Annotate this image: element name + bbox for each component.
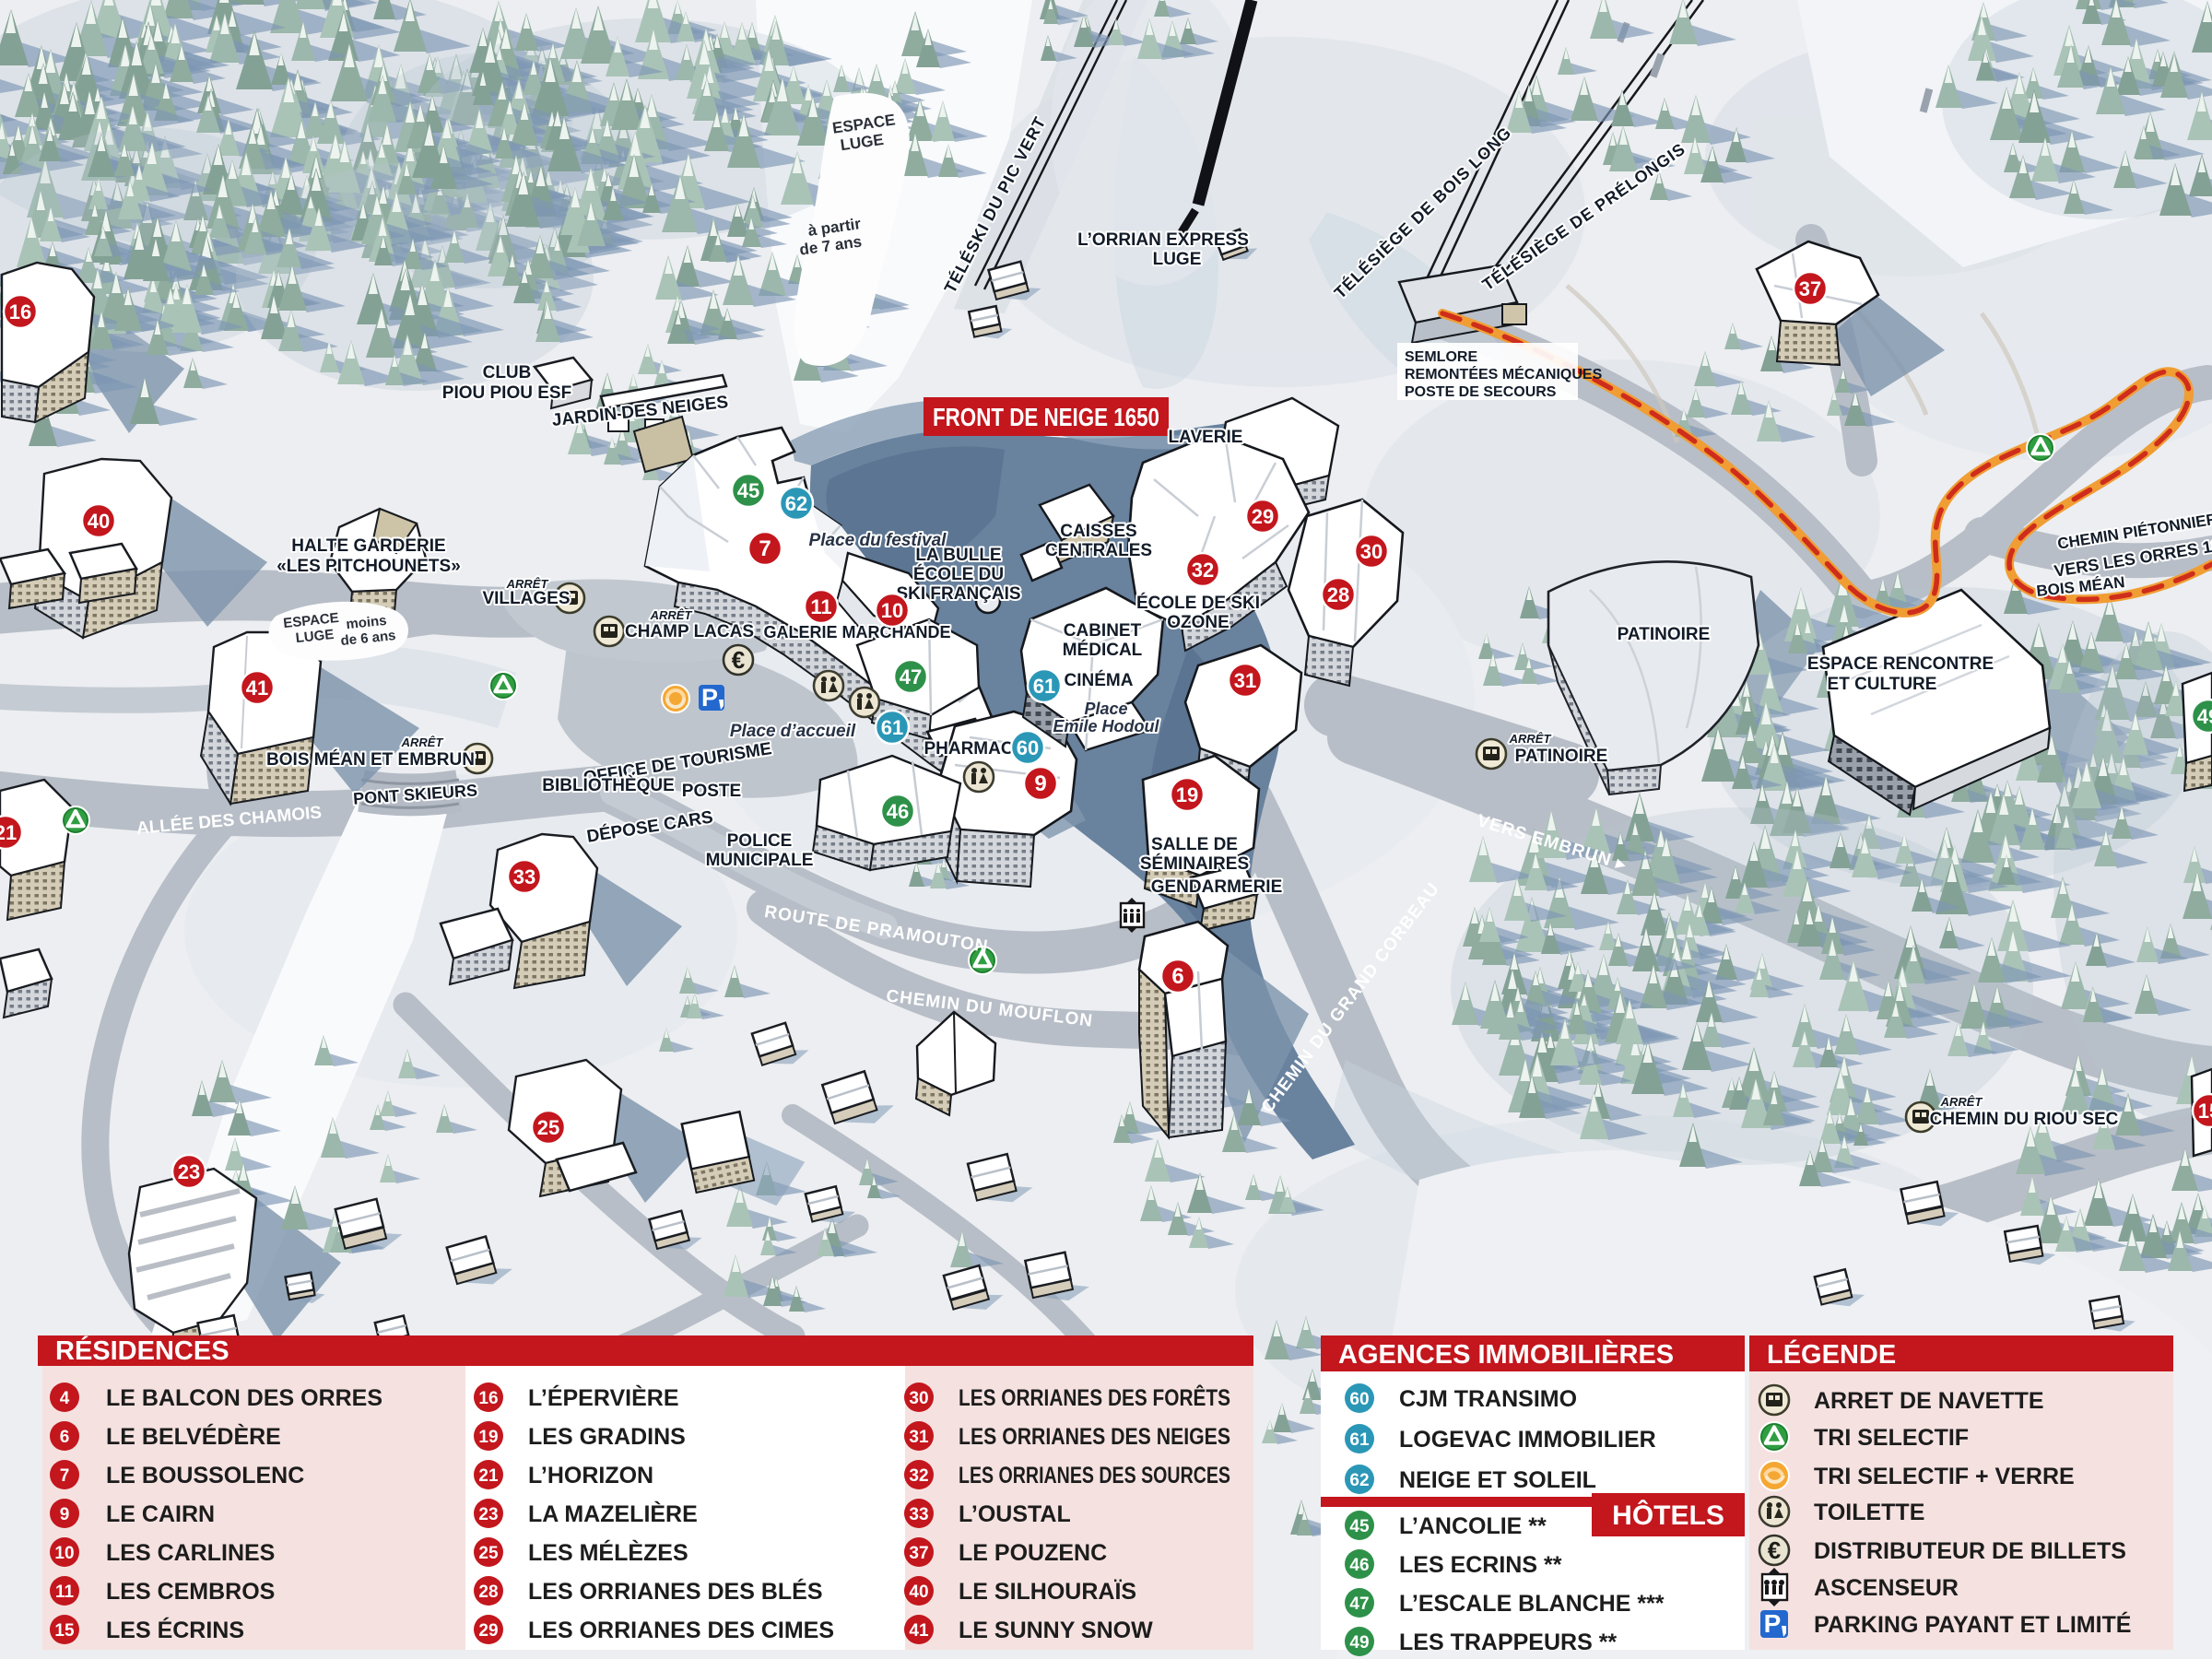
svg-text:LE BELVÉDÈRE: LE BELVÉDÈRE bbox=[106, 1423, 281, 1450]
svg-text:61: 61 bbox=[1033, 675, 1055, 698]
svg-text:SALLE DE: SALLE DE bbox=[1151, 835, 1238, 854]
svg-text:LE BOUSSOLENC: LE BOUSSOLENC bbox=[106, 1463, 304, 1488]
svg-text:LES ORRIANES DES FORÊTS: LES ORRIANES DES FORÊTS bbox=[959, 1383, 1230, 1411]
svg-text:L’OUSTAL: L’OUSTAL bbox=[959, 1501, 1071, 1527]
svg-text:47: 47 bbox=[1349, 1594, 1369, 1614]
svg-text:40: 40 bbox=[88, 510, 110, 533]
svg-text:32: 32 bbox=[1192, 559, 1214, 582]
svg-text:TRI SELECTIF: TRI SELECTIF bbox=[1814, 1425, 1969, 1451]
svg-text:LES MÉLÈZES: LES MÉLÈZES bbox=[528, 1539, 688, 1566]
svg-text:60: 60 bbox=[1349, 1390, 1369, 1409]
svg-text:21: 21 bbox=[478, 1466, 499, 1486]
svg-text:7: 7 bbox=[759, 536, 771, 561]
svg-text:TRI SELECTIF + VERRE: TRI SELECTIF + VERRE bbox=[1814, 1464, 2075, 1489]
svg-text:46: 46 bbox=[887, 800, 909, 823]
svg-text:6: 6 bbox=[1171, 964, 1183, 989]
svg-text:PATINOIRE: PATINOIRE bbox=[1515, 747, 1608, 766]
svg-text:28: 28 bbox=[478, 1583, 498, 1602]
svg-text:LE BALCON DES ORRES: LE BALCON DES ORRES bbox=[106, 1385, 382, 1411]
svg-text:POSTE DE SECOURS: POSTE DE SECOURS bbox=[1405, 384, 1557, 400]
svg-text:TOILETTE: TOILETTE bbox=[1814, 1500, 1924, 1525]
svg-text:DISTRIBUTEUR DE BILLETS: DISTRIBUTEUR DE BILLETS bbox=[1814, 1538, 2126, 1564]
svg-text:LES TRAPPEURS **: LES TRAPPEURS ** bbox=[1399, 1630, 1617, 1655]
svg-text:49: 49 bbox=[1349, 1633, 1369, 1653]
svg-text:ARRÊT: ARRÊT bbox=[401, 735, 444, 749]
svg-text:28: 28 bbox=[1327, 583, 1349, 606]
svg-text:62: 62 bbox=[785, 492, 807, 515]
svg-text:ARRET DE NAVETTE: ARRET DE NAVETTE bbox=[1814, 1388, 2044, 1414]
svg-text:LES ÉCRINS: LES ÉCRINS bbox=[106, 1617, 244, 1643]
svg-text:FRONT DE NEIGE 1650: FRONT DE NEIGE 1650 bbox=[933, 403, 1159, 431]
svg-text:GENDARMERIE: GENDARMERIE bbox=[1151, 877, 1283, 897]
svg-text:37: 37 bbox=[909, 1544, 928, 1563]
svg-text:LE SUNNY SNOW: LE SUNNY SNOW bbox=[959, 1618, 1153, 1643]
svg-text:10: 10 bbox=[54, 1544, 74, 1563]
svg-text:LAVERIE: LAVERIE bbox=[1169, 428, 1243, 447]
svg-text:31: 31 bbox=[909, 1428, 929, 1447]
svg-text:MUNICIPALE: MUNICIPALE bbox=[706, 851, 814, 870]
svg-text:LE POUZENC: LE POUZENC bbox=[959, 1540, 1107, 1566]
svg-text:Emile Hodoul: Emile Hodoul bbox=[1053, 717, 1159, 735]
svg-text:BIBLIOTHÈQUE: BIBLIOTHÈQUE bbox=[542, 775, 675, 795]
svg-text:47: 47 bbox=[900, 665, 922, 688]
svg-text:11: 11 bbox=[810, 595, 831, 618]
svg-text:LES CEMBROS: LES CEMBROS bbox=[106, 1579, 275, 1605]
svg-text:CHEMIN DU RIOU SEC: CHEMIN DU RIOU SEC bbox=[1930, 1110, 2119, 1129]
svg-text:10: 10 bbox=[881, 599, 903, 622]
svg-text:Place du festival: Place du festival bbox=[809, 531, 947, 550]
svg-text:49: 49 bbox=[2197, 705, 2212, 728]
svg-text:CAISSES: CAISSES bbox=[1060, 522, 1136, 541]
svg-text:15: 15 bbox=[54, 1621, 75, 1641]
svg-text:33: 33 bbox=[513, 865, 535, 888]
svg-text:41: 41 bbox=[909, 1621, 929, 1641]
svg-text:6: 6 bbox=[60, 1428, 70, 1447]
svg-text:L’ANCOLIE **: L’ANCOLIE ** bbox=[1399, 1513, 1547, 1539]
svg-text:19: 19 bbox=[1176, 783, 1198, 806]
svg-text:LES ORRIANES DES NEIGES: LES ORRIANES DES NEIGES bbox=[959, 1424, 1230, 1450]
svg-text:VILLAGES: VILLAGES bbox=[482, 589, 570, 608]
svg-text:61: 61 bbox=[1349, 1430, 1370, 1450]
svg-text:CINÉMA: CINÉMA bbox=[1065, 670, 1134, 690]
svg-text:30: 30 bbox=[1360, 540, 1382, 563]
svg-text:16: 16 bbox=[478, 1389, 498, 1408]
svg-text:HALTE GARDERIE: HALTE GARDERIE bbox=[291, 536, 445, 556]
svg-text:23: 23 bbox=[178, 1160, 200, 1183]
svg-text:LES ORRIANES DES SOURCES: LES ORRIANES DES SOURCES bbox=[959, 1463, 1230, 1488]
svg-text:21: 21 bbox=[0, 821, 17, 844]
svg-text:ARRÊT: ARRÊT bbox=[1509, 732, 1552, 746]
svg-text:Place: Place bbox=[1084, 700, 1127, 718]
svg-text:7: 7 bbox=[60, 1466, 70, 1486]
svg-text:ARRÊT: ARRÊT bbox=[1940, 1095, 1983, 1109]
svg-text:REMONTÉES MÉCANIQUES: REMONTÉES MÉCANIQUES bbox=[1405, 365, 1603, 382]
svg-text:CHAMP LACAS: CHAMP LACAS bbox=[625, 622, 754, 641]
svg-text:45: 45 bbox=[737, 479, 759, 502]
svg-text:9: 9 bbox=[1034, 771, 1046, 796]
svg-text:ARRÊT: ARRÊT bbox=[650, 608, 693, 622]
svg-text:€: € bbox=[1768, 1536, 1781, 1564]
svg-text:LES ORRIANES DES BLÉS: LES ORRIANES DES BLÉS bbox=[528, 1578, 823, 1605]
svg-text:40: 40 bbox=[909, 1583, 928, 1602]
svg-text:32: 32 bbox=[909, 1466, 928, 1486]
svg-text:POLICE: POLICE bbox=[727, 831, 793, 851]
svg-text:LES CARLINES: LES CARLINES bbox=[106, 1540, 275, 1566]
svg-text:19: 19 bbox=[478, 1428, 498, 1447]
svg-text:RÉSIDENCES: RÉSIDENCES bbox=[55, 1335, 229, 1366]
svg-text:61: 61 bbox=[881, 716, 903, 739]
svg-text:€: € bbox=[732, 646, 745, 674]
svg-text:LE SILHOURAÏS: LE SILHOURAÏS bbox=[959, 1579, 1136, 1605]
svg-text:29: 29 bbox=[1252, 505, 1274, 528]
svg-text:P: P bbox=[1764, 1609, 1782, 1638]
svg-text:CENTRALES: CENTRALES bbox=[1045, 541, 1152, 560]
svg-text:AGENCES IMMOBILIÈRES: AGENCES IMMOBILIÈRES bbox=[1338, 1338, 1674, 1370]
svg-text:30: 30 bbox=[909, 1389, 928, 1408]
svg-text:LÉGENDE: LÉGENDE bbox=[1767, 1338, 1896, 1370]
svg-text:SEMLORE: SEMLORE bbox=[1405, 349, 1477, 365]
svg-text:25: 25 bbox=[537, 1116, 559, 1139]
svg-text:L’ESCALE BLANCHE ***: L’ESCALE BLANCHE *** bbox=[1399, 1591, 1665, 1617]
svg-text:33: 33 bbox=[909, 1505, 928, 1524]
svg-text:ASCENSEUR: ASCENSEUR bbox=[1814, 1575, 1959, 1601]
svg-text:41: 41 bbox=[246, 677, 268, 700]
svg-text:37: 37 bbox=[1799, 277, 1821, 300]
svg-text:60: 60 bbox=[1017, 736, 1039, 759]
svg-text:25: 25 bbox=[478, 1544, 499, 1563]
svg-text:62: 62 bbox=[1349, 1471, 1369, 1490]
svg-text:SKI FRANÇAIS: SKI FRANÇAIS bbox=[896, 584, 1020, 604]
svg-text:LES GRADINS: LES GRADINS bbox=[528, 1424, 686, 1450]
svg-text:46: 46 bbox=[1349, 1556, 1369, 1575]
svg-text:P: P bbox=[701, 684, 718, 712]
svg-text:L’ÉPERVIÈRE: L’ÉPERVIÈRE bbox=[528, 1384, 679, 1411]
svg-text:4: 4 bbox=[60, 1389, 70, 1408]
svg-text:CABINET: CABINET bbox=[1064, 621, 1142, 641]
svg-text:CLUB: CLUB bbox=[483, 363, 532, 382]
svg-text:31: 31 bbox=[1234, 669, 1256, 692]
svg-text:LOGEVAC IMMOBILIER: LOGEVAC IMMOBILIER bbox=[1399, 1427, 1656, 1453]
svg-text:Place d’accueil: Place d’accueil bbox=[730, 722, 856, 741]
svg-text:9: 9 bbox=[60, 1505, 70, 1524]
svg-text:«LES PITCHOUNETS»: «LES PITCHOUNETS» bbox=[276, 557, 461, 576]
svg-text:29: 29 bbox=[478, 1621, 498, 1641]
svg-text:23: 23 bbox=[478, 1505, 498, 1524]
svg-text:ET CULTURE: ET CULTURE bbox=[1828, 675, 1937, 694]
svg-text:GALERIE MARCHANDE: GALERIE MARCHANDE bbox=[763, 623, 950, 641]
svg-text:ÉCOLE DE SKI: ÉCOLE DE SKI bbox=[1136, 593, 1260, 613]
svg-text:LE CAIRN: LE CAIRN bbox=[106, 1501, 215, 1527]
svg-text:PATINOIRE: PATINOIRE bbox=[1618, 625, 1711, 644]
svg-text:16: 16 bbox=[9, 300, 31, 324]
svg-text:ESPACE RENCONTRE: ESPACE RENCONTRE bbox=[1807, 654, 1994, 674]
svg-text:NEIGE ET SOLEIL: NEIGE ET SOLEIL bbox=[1399, 1467, 1596, 1493]
svg-text:OZONE: OZONE bbox=[1167, 613, 1230, 632]
svg-text:POSTE: POSTE bbox=[682, 782, 741, 801]
svg-text:PARKING PAYANT ET LIMITÉ: PARKING PAYANT ET LIMITÉ bbox=[1814, 1611, 2131, 1638]
svg-text:LUGE: LUGE bbox=[1153, 250, 1202, 269]
svg-text:45: 45 bbox=[1349, 1517, 1370, 1536]
svg-text:L’ORRIAN EXPRESS: L’ORRIAN EXPRESS bbox=[1077, 230, 1249, 250]
svg-text:LA MAZELIÈRE: LA MAZELIÈRE bbox=[528, 1500, 698, 1527]
svg-text:HÔTELS: HÔTELS bbox=[1612, 1500, 1724, 1531]
svg-text:LES ORRIANES DES CIMES: LES ORRIANES DES CIMES bbox=[528, 1618, 834, 1643]
svg-text:11: 11 bbox=[55, 1583, 75, 1602]
svg-text:PIOU PIOU ESF: PIOU PIOU ESF bbox=[442, 383, 571, 403]
svg-text:BOIS MÉAN ET EMBRUN: BOIS MÉAN ET EMBRUN bbox=[266, 749, 475, 770]
svg-text:MÉDICAL: MÉDICAL bbox=[1063, 640, 1143, 660]
svg-text:15: 15 bbox=[2198, 1100, 2212, 1123]
svg-text:ÉCOLE DU: ÉCOLE DU bbox=[913, 564, 1004, 584]
svg-text:LES ECRINS **: LES ECRINS ** bbox=[1399, 1552, 1562, 1578]
svg-text:L’HORIZON: L’HORIZON bbox=[528, 1463, 653, 1488]
svg-text:SÉMINAIRES: SÉMINAIRES bbox=[1140, 853, 1249, 874]
svg-text:CJM TRANSIMO: CJM TRANSIMO bbox=[1399, 1386, 1577, 1412]
